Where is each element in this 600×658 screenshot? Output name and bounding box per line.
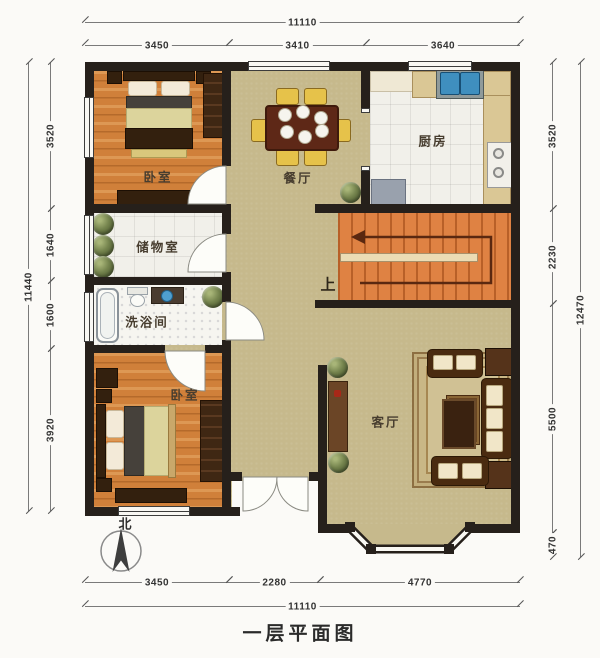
floor-plan-canvas: 卧室 餐厅 厨房 储物室 洗浴间 卧室 客厅 上 北 11110 3450 34… <box>0 0 600 658</box>
plate <box>315 124 329 138</box>
stove-burner <box>493 148 504 159</box>
plate <box>314 111 328 125</box>
bathtub-basin <box>100 292 115 339</box>
bench-bedroom-bottom <box>115 488 187 503</box>
dining-chair <box>276 88 299 105</box>
bathtub <box>96 288 119 343</box>
dim-right-segment: 3520 <box>552 62 553 209</box>
sofa-cushion <box>486 408 503 429</box>
bay-window-mullion <box>366 544 376 554</box>
wall <box>231 472 242 481</box>
window-bedroom-top <box>84 97 94 158</box>
plant-living-bottom <box>328 452 349 473</box>
bed-top-footboard <box>125 128 193 149</box>
window-storage <box>84 215 94 275</box>
bed-top-blanket <box>126 108 192 130</box>
sofa-top <box>427 349 483 378</box>
dim-right-segment: 470 <box>552 533 553 557</box>
bed-bottom-pillow-bottom <box>106 442 124 470</box>
wardrobe-bedroom-bottom <box>200 400 224 482</box>
dining-chair <box>276 149 299 166</box>
plant-dining <box>340 182 361 203</box>
window-dining <box>248 61 330 71</box>
plant-hall <box>202 286 224 308</box>
dim-top-segment: 3410 <box>229 45 366 46</box>
dim-left-segment: 1600 <box>50 281 51 349</box>
compass-circle <box>101 531 141 571</box>
dim-left-total: 11440 <box>28 62 29 511</box>
side-table-bottom <box>485 461 513 489</box>
stove-burner <box>493 167 504 178</box>
dim-left-segment: 1640 <box>50 209 51 281</box>
living-label: 客厅 <box>371 412 400 431</box>
wall <box>222 204 231 234</box>
kitchen-label: 厨房 <box>418 131 447 150</box>
storage-label: 储物室 <box>136 237 180 256</box>
plate <box>280 125 294 139</box>
dim-left-segment: 3520 <box>50 62 51 209</box>
wall <box>318 365 327 533</box>
entry-porch <box>232 481 318 531</box>
bay-window-mullion <box>444 544 454 554</box>
bed-bottom-footrail <box>168 404 176 478</box>
wall <box>315 300 511 308</box>
dim-right-segment: 5500 <box>552 304 553 533</box>
dining-label: 餐厅 <box>283 168 312 187</box>
window-kitchen <box>408 61 472 71</box>
refrigerator <box>371 179 406 207</box>
bed-bottom-pillow-top <box>106 410 124 438</box>
kitchen-counter-left <box>370 71 414 92</box>
dim-bottom-total: 11110 <box>85 606 520 607</box>
dim-bottom-segment: 4770 <box>320 582 520 583</box>
dim-bottom-segment: 3450 <box>85 582 229 583</box>
wall <box>222 272 231 302</box>
sofa-cushion <box>438 463 458 479</box>
window-bathroom <box>84 292 94 342</box>
wall <box>468 524 520 533</box>
exterior-gap-left <box>85 516 233 536</box>
compass-north-label: 北 <box>118 514 131 533</box>
bed-top-headboard <box>123 71 195 81</box>
dining-chair <box>304 149 327 166</box>
dim-right-segment: 2230 <box>552 209 553 304</box>
tv-cabinet-decor <box>334 390 341 397</box>
nightstand-top-left <box>107 71 122 84</box>
dresser-bedroom-bottom <box>96 368 118 388</box>
plate <box>278 108 292 122</box>
bed-bottom-blanket <box>144 406 170 476</box>
plant-storage <box>92 235 114 257</box>
sofa-bottom <box>431 456 489 486</box>
wall <box>85 204 231 213</box>
sink-basin-right <box>460 72 480 95</box>
wall <box>511 62 520 533</box>
plant-storage <box>92 256 114 278</box>
bedroom-bottom-label: 卧室 <box>170 385 199 404</box>
wall <box>222 340 231 516</box>
bed-top-pillow-right <box>161 81 190 96</box>
kitchen-door-jamb <box>361 166 370 171</box>
stairs-up-label: 上 <box>320 274 335 295</box>
toilet-bowl <box>130 294 145 307</box>
sofa-right <box>481 378 513 459</box>
wall <box>361 62 370 110</box>
bed-top-pillow-left <box>128 81 157 96</box>
sofa-cushion <box>486 431 503 452</box>
stair-handrail <box>340 253 478 262</box>
dim-top-total: 11110 <box>85 22 520 23</box>
nightstand-bottom-bottom <box>96 478 112 492</box>
plant-storage <box>92 213 114 235</box>
wardrobe-bedroom-top <box>203 73 224 138</box>
sink-basin-left <box>440 72 460 95</box>
dining-chair <box>304 88 327 105</box>
sofa-cushion <box>456 355 476 370</box>
wall <box>85 345 165 353</box>
bedroom-top-label: 卧室 <box>143 167 172 186</box>
bay-window-wall <box>350 528 470 549</box>
plan-title: 一层平面图 <box>242 619 357 646</box>
plate <box>296 105 310 119</box>
bathroom-label: 洗浴间 <box>125 312 169 331</box>
kitchen-door-jamb <box>361 108 370 113</box>
nightstand-bottom-top <box>96 389 112 403</box>
dim-left-segment: 3920 <box>50 349 51 511</box>
bed-bottom-runner <box>124 406 146 476</box>
bay-window-glass <box>350 528 470 549</box>
dim-top-segment: 3640 <box>366 45 520 46</box>
sofa-cushion <box>433 355 453 370</box>
plant-living-top <box>327 357 348 378</box>
plate <box>298 130 312 144</box>
wall <box>222 62 231 166</box>
dim-bottom-segment: 2280 <box>229 582 320 583</box>
sofa-cushion <box>462 463 482 479</box>
wall <box>85 277 231 285</box>
side-table-top <box>485 348 513 376</box>
bed-bottom-headboard <box>96 404 106 478</box>
dim-right-total: 12470 <box>580 62 581 557</box>
wall <box>315 204 511 213</box>
dim-top-segment: 3450 <box>85 45 229 46</box>
coffee-table <box>442 399 476 449</box>
bed-top-rug <box>131 149 187 158</box>
vanity-sink <box>161 290 173 302</box>
sofa-cushion <box>486 385 503 406</box>
